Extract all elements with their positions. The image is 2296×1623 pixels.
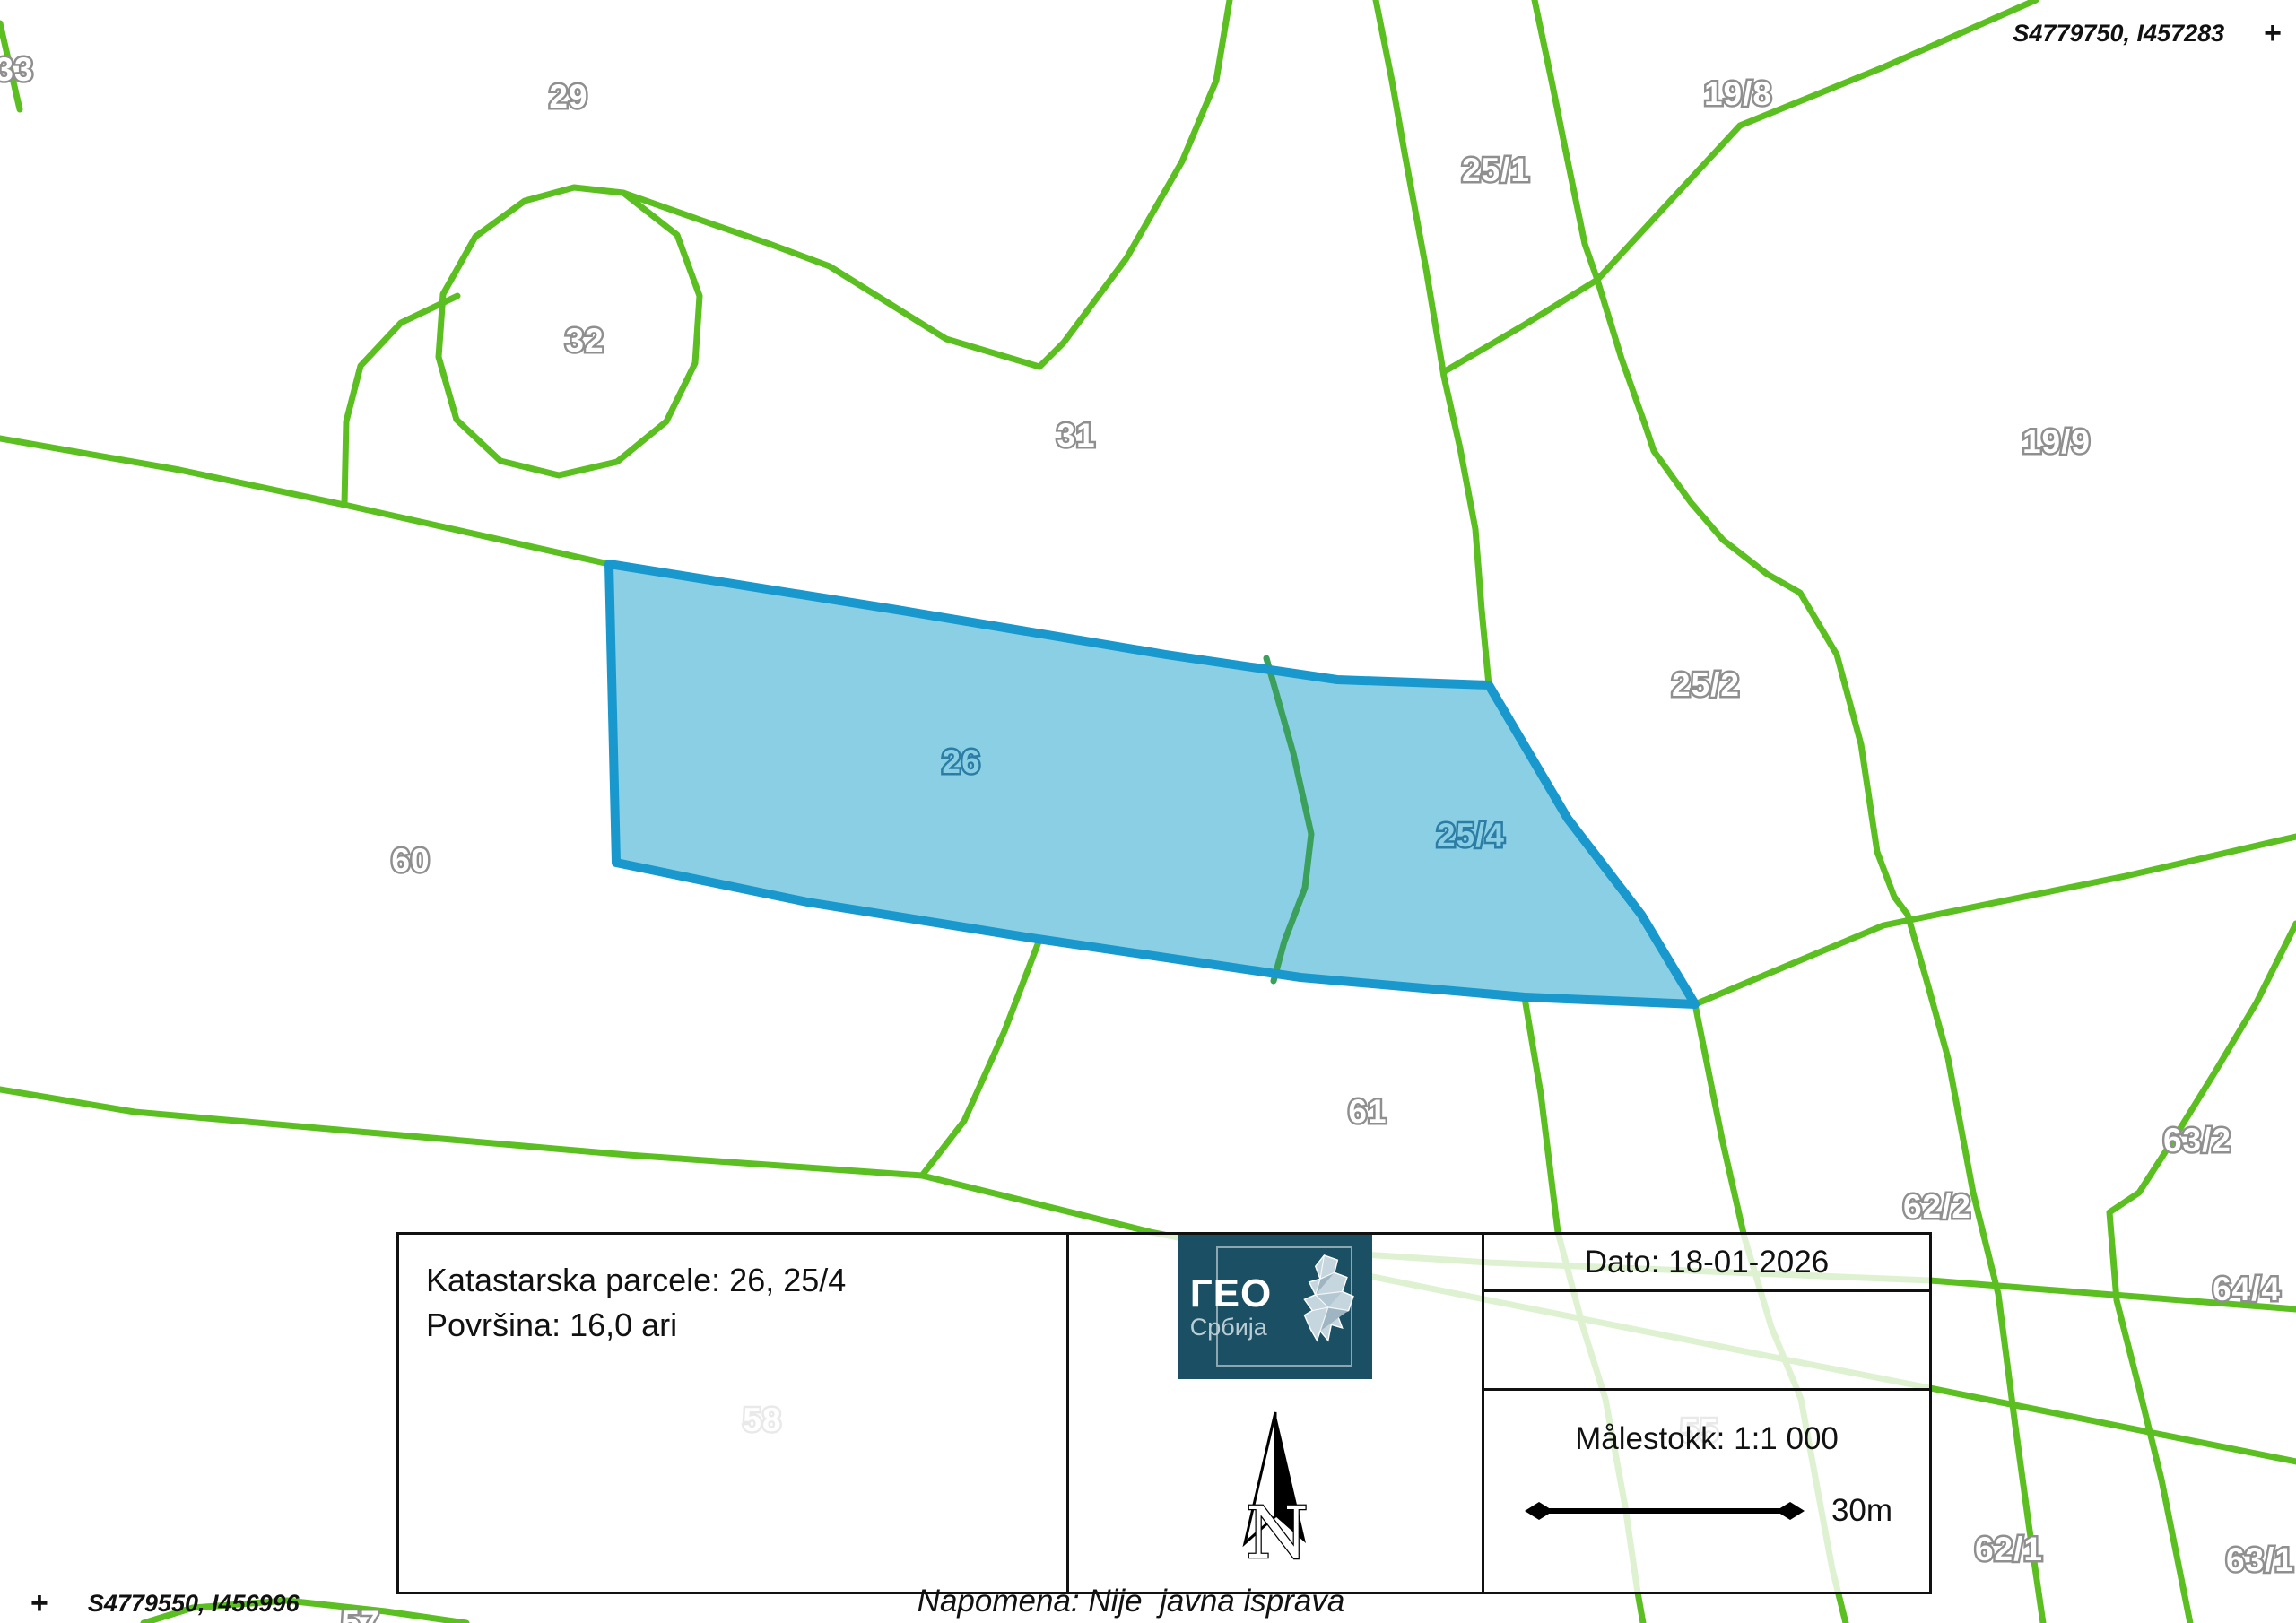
- boundary-hill-link: [623, 193, 1039, 367]
- scale-bar: 30m: [1484, 1493, 1929, 1529]
- geo-srbija-logo: ГЕО Србија: [1178, 1235, 1372, 1379]
- empty-row: [1484, 1292, 1929, 1391]
- parcel-label-64-4: 64/4: [2213, 1271, 2281, 1307]
- scale-label: Målestokk: 1:1 000: [1484, 1421, 1929, 1457]
- parcel-label-31: 31: [1057, 417, 1095, 454]
- parcel-label-61: 61: [1348, 1093, 1387, 1130]
- parcel-label-29: 29: [549, 78, 587, 115]
- map-info-box: Katastarska parcele: 26, 25/4 Površina: …: [396, 1232, 1932, 1594]
- highlighted-parcel-fill[interactable]: [609, 564, 1695, 1004]
- crosshair-marker-icon: +: [2264, 16, 2282, 51]
- boundary-top-curve: [1039, 0, 1230, 367]
- parcel-label-25-1: 25/1: [1462, 152, 1530, 188]
- parcel-label-33: 33: [0, 51, 34, 88]
- coordinate-ref-label: S4779750, I457283: [2013, 20, 2224, 48]
- boundary-diagonal-19-8: [1445, 0, 2036, 371]
- coordinate-ref-label: S4779550, I456996: [88, 1590, 300, 1618]
- boundary-parcel-61-west: [922, 933, 1042, 1176]
- logo-text: ГЕО Србија: [1190, 1273, 1273, 1341]
- parcel-label-63-1: 63/1: [2226, 1541, 2294, 1578]
- scale-bar-length-label: 30m: [1831, 1493, 1892, 1529]
- parcel-label-32: 32: [565, 322, 604, 359]
- north-letter: N: [1246, 1491, 1309, 1564]
- parcel-label-63-2: 63/2: [2163, 1122, 2231, 1159]
- boundary-tip-east: [1695, 837, 2296, 1004]
- parcel-label-25-4: 25/4: [1437, 817, 1505, 854]
- parcel-info-section: Katastarska parcele: 26, 25/4 Površina: …: [399, 1235, 1069, 1592]
- scale-bar-icon: [1521, 1495, 1808, 1527]
- parcel-label-19-8: 19/8: [1704, 75, 1772, 112]
- footer-note: Napomena: Nije javna isprava: [918, 1584, 1345, 1619]
- cadastral-map-view: 3329323125/119/819/925/2602625/46162/263…: [0, 0, 2296, 1623]
- parcel-label-19-9: 19/9: [2022, 423, 2091, 460]
- date-row: Dato: 18-01-2026: [1484, 1235, 1929, 1292]
- coordinate-ref-top-right: S4779750, I457283 +: [2013, 16, 2282, 51]
- parcel-area-line: Površina: 16,0 ari: [426, 1303, 1039, 1348]
- crosshair-marker-icon: +: [30, 1586, 48, 1621]
- map-meta-section: Dato: 18-01-2026 Målestokk: 1:1 000 30m: [1484, 1235, 1929, 1592]
- north-arrow-icon: N: [1222, 1407, 1329, 1568]
- parcel-label-62-1: 62/1: [1975, 1531, 2043, 1567]
- scale-row: Målestokk: 1:1 000 30m: [1484, 1391, 1929, 1592]
- parcel-label-25-2: 25/2: [1672, 666, 1740, 703]
- parcel-label-57: 57: [341, 1604, 379, 1623]
- boundary-road-west-edge: [1376, 0, 1489, 685]
- date-label: Dato: 18-01-2026: [1585, 1245, 1829, 1280]
- parcel-label-60: 60: [391, 842, 430, 879]
- parcel-info-line: Katastarska parcele: 26, 25/4: [426, 1258, 1039, 1303]
- logo-line1: ГЕО: [1190, 1273, 1273, 1315]
- branding-section: ГЕО Србија N: [1069, 1235, 1484, 1592]
- logo-line2: Србија: [1190, 1315, 1273, 1340]
- parcel-label-62-2: 62/2: [1903, 1188, 1971, 1225]
- parcel-label-26: 26: [942, 743, 980, 780]
- coordinate-ref-bottom-left: + S4779550, I456996: [30, 1586, 300, 1621]
